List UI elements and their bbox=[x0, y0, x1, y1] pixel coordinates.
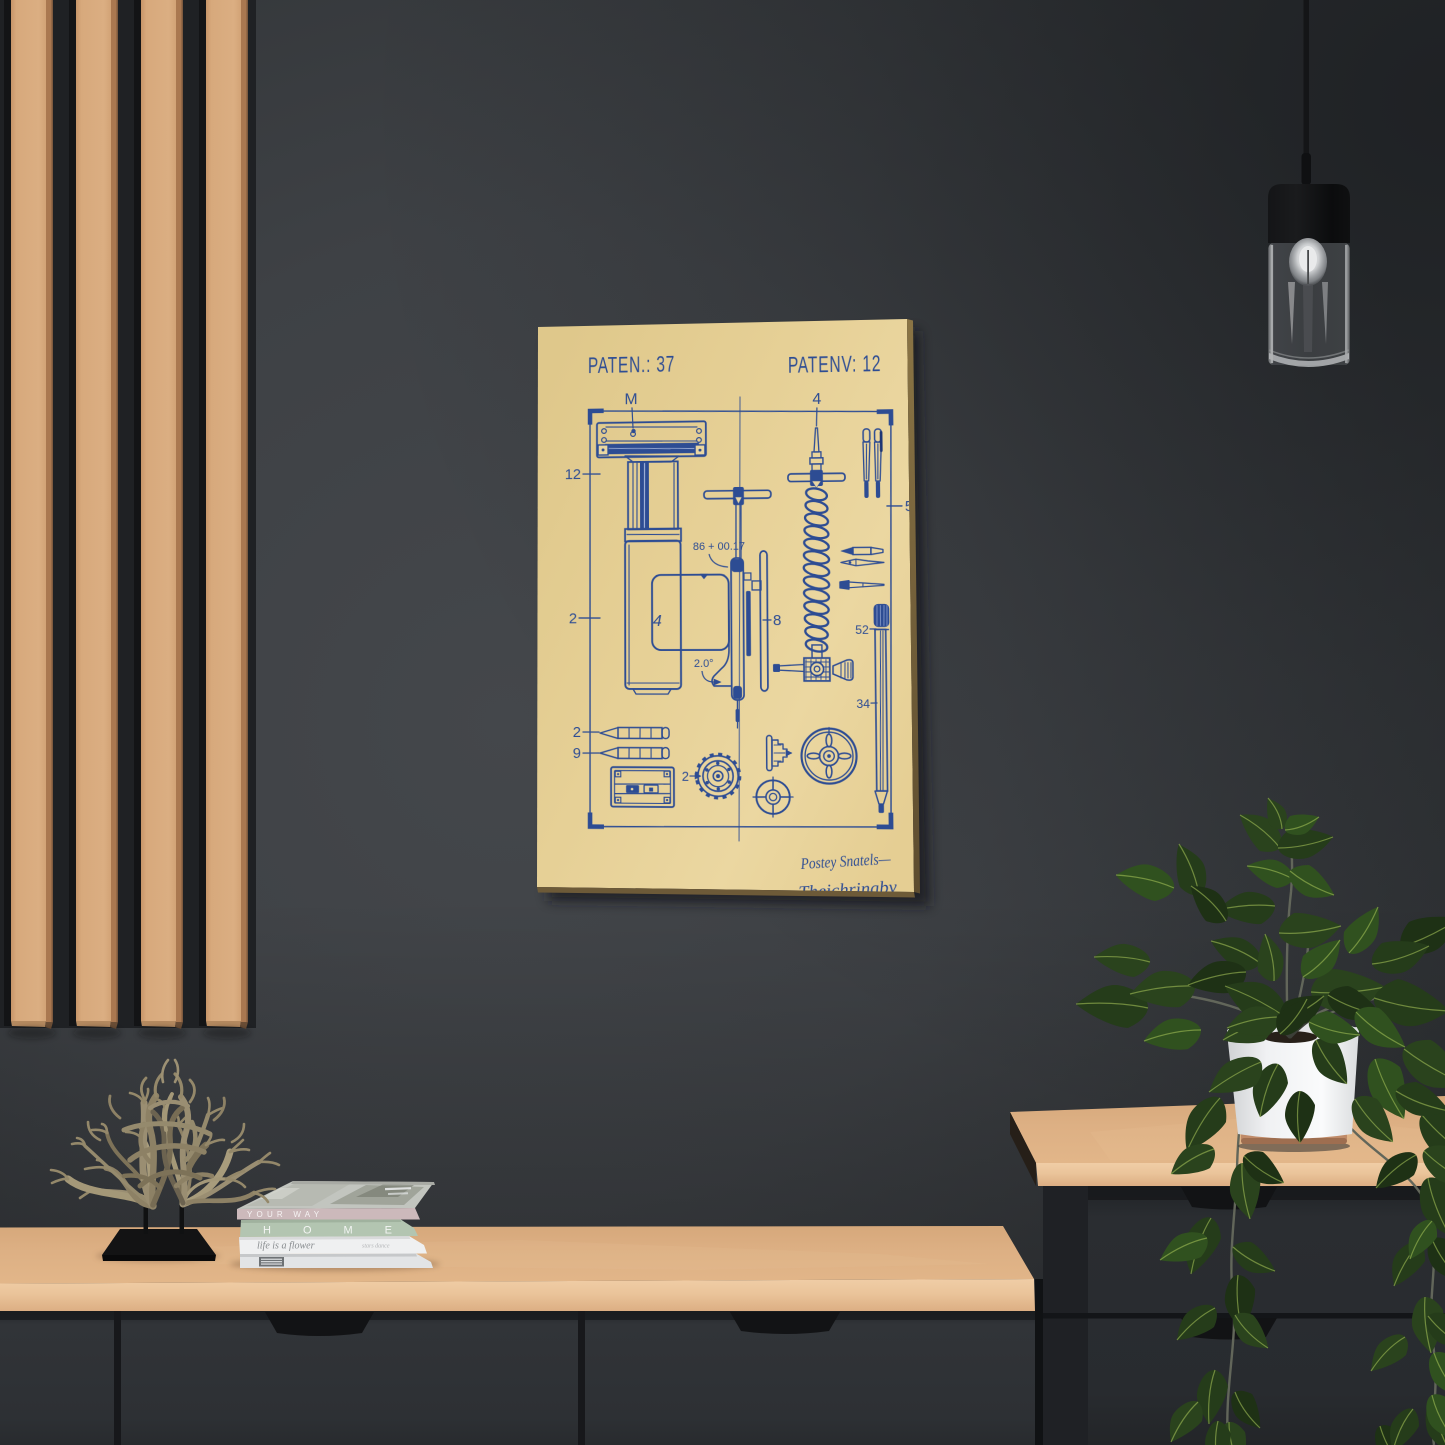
svg-text:2: 2 bbox=[569, 610, 577, 627]
svg-text:life is a flower: life is a flower bbox=[257, 1241, 315, 1252]
svg-text:PATENV: 12: PATENV: 12 bbox=[788, 350, 882, 378]
svg-text:stars dance: stars dance bbox=[362, 1244, 390, 1250]
svg-text:8: 8 bbox=[773, 612, 782, 629]
svg-text:2: 2 bbox=[573, 724, 581, 741]
svg-text:34: 34 bbox=[856, 698, 870, 711]
svg-text:M: M bbox=[624, 390, 637, 408]
svg-text:52: 52 bbox=[855, 624, 869, 637]
svg-text:12: 12 bbox=[565, 467, 581, 484]
svg-text:9: 9 bbox=[573, 745, 581, 762]
svg-text:Theichrinaby: Theichrinaby bbox=[798, 878, 899, 892]
svg-text:2.0°: 2.0° bbox=[694, 658, 714, 670]
svg-text:86 + 00.17: 86 + 00.17 bbox=[693, 541, 745, 553]
svg-text:Postey Snatels—: Postey Snatels— bbox=[799, 851, 892, 874]
svg-text:PATEN.: 37: PATEN.: 37 bbox=[588, 351, 675, 379]
svg-text:2: 2 bbox=[682, 769, 689, 784]
svg-text:4: 4 bbox=[653, 612, 662, 630]
svg-text:YOUR WAY: YOUR WAY bbox=[247, 1210, 323, 1219]
svg-text:HOME: HOME bbox=[263, 1225, 424, 1237]
svg-text:4: 4 bbox=[812, 390, 821, 408]
